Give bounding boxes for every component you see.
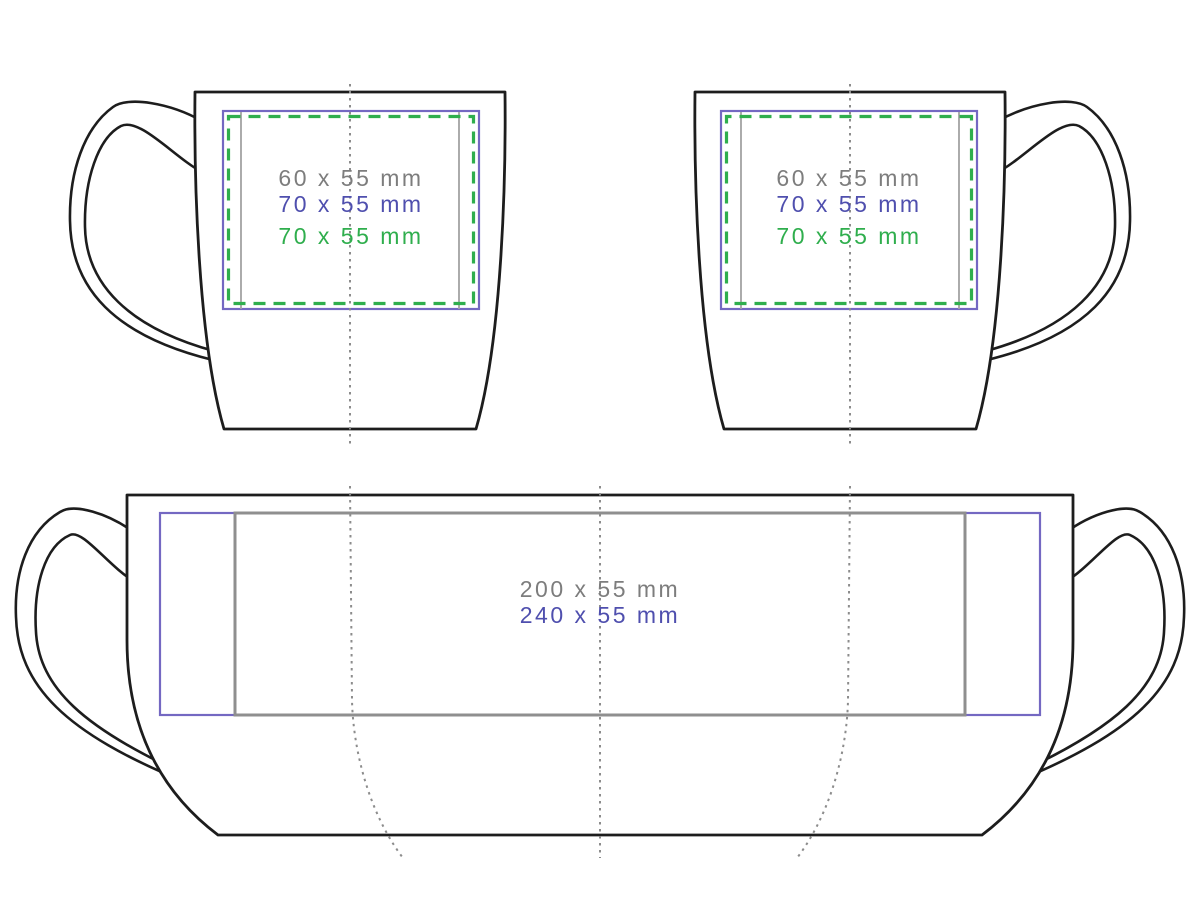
print-size-label: 70 x 55 mm <box>776 191 921 217</box>
print-size-label: 240 x 55 mm <box>520 602 680 628</box>
wrap-view: 200 x 55 mm 240 x 55 mm <box>16 486 1184 858</box>
mug-wrap-body-outline <box>127 495 1073 835</box>
print-size-label: 70 x 55 mm <box>776 223 921 249</box>
side-view-left-handle: 60 x 55 mm 70 x 55 mm 70 x 55 mm <box>70 84 505 447</box>
print-size-label: 70 x 55 mm <box>278 223 423 249</box>
mug-print-area-template: 60 x 55 mm 70 x 55 mm 70 x 55 mm 60 x 55… <box>0 0 1200 900</box>
side-view-right-handle: 60 x 55 mm 70 x 55 mm 70 x 55 mm <box>695 84 1130 447</box>
print-size-label: 60 x 55 mm <box>776 165 921 191</box>
print-size-label: 70 x 55 mm <box>278 191 423 217</box>
print-size-label: 200 x 55 mm <box>520 576 680 602</box>
print-size-label: 60 x 55 mm <box>278 165 423 191</box>
